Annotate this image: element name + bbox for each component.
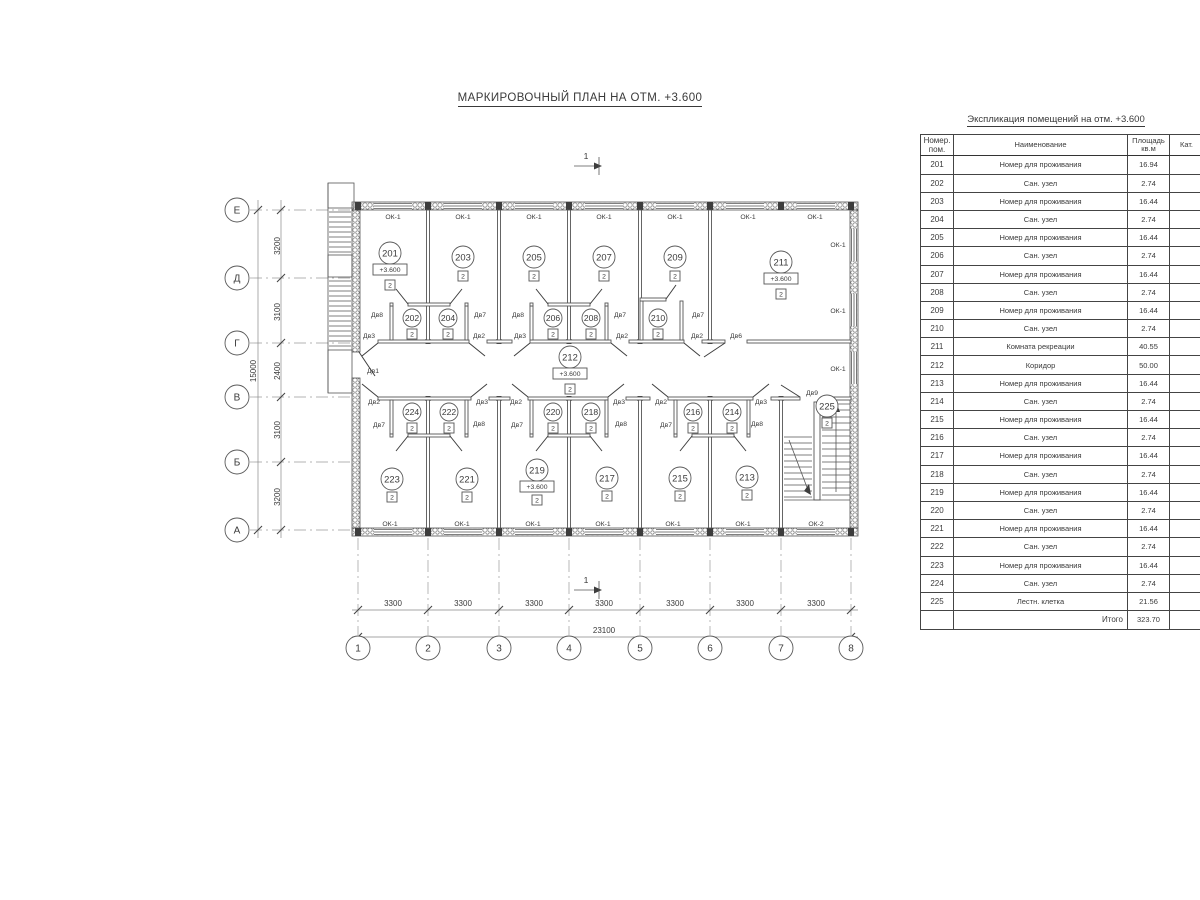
axis-number: 8 — [848, 644, 854, 655]
window-label: ОК-1 — [455, 214, 471, 221]
window-label: ОК-2 — [808, 521, 824, 528]
room-tag: 222 — [442, 407, 457, 417]
room-tag: 203 — [455, 252, 471, 263]
window-label: ОК-1 — [807, 214, 823, 221]
window-label: ОК-1 — [595, 521, 611, 528]
table-row: 208 Сан. узел 2.74 — [921, 283, 1200, 301]
category-mark: 2 — [589, 332, 593, 339]
total-row: Итого 323.70 — [921, 611, 1200, 630]
external-stair — [328, 183, 354, 393]
room-tag: 216 — [686, 407, 701, 417]
room-tag: 223 — [384, 474, 400, 485]
table-row: 201 Номер для проживания 16.94 — [921, 156, 1200, 174]
room-tag: 220 — [546, 407, 561, 417]
category-mark: 2 — [390, 495, 394, 502]
room-tag: 225 — [819, 401, 835, 412]
room-tag: 210 — [651, 313, 666, 323]
room-tag: 211 — [774, 257, 789, 268]
col-header-category: Кат. — [1170, 135, 1200, 156]
dim-v-4: 3100 — [273, 421, 282, 439]
category-mark: 2 — [656, 332, 660, 339]
category-mark: 2 — [673, 274, 677, 281]
dim-h-7: 3300 — [807, 599, 825, 608]
table-row: 225 Лестн. клетка 21.56 — [921, 592, 1200, 610]
door-label: Дв3 — [363, 333, 375, 340]
elevation-mark: +3.600 — [771, 276, 792, 283]
dim-h-1: 3300 — [384, 599, 402, 608]
door-label: Дв2 — [368, 399, 380, 406]
table-row: 222 Сан. узел 2.74 — [921, 538, 1200, 556]
room-tag: 208 — [584, 313, 599, 323]
axis-number: 3 — [496, 644, 502, 655]
category-mark: 2 — [388, 283, 392, 290]
elevation-mark: +3.600 — [560, 371, 581, 378]
category-mark: 2 — [589, 426, 593, 433]
door-label: Дв2 — [510, 399, 522, 406]
section-mark-bottom: 1 — [584, 575, 589, 585]
room-tag: 224 — [405, 407, 420, 417]
category-mark: 2 — [602, 274, 606, 281]
room-schedule: Экспликация помещений на отм. +3.600 Ном… — [920, 114, 1192, 630]
section-mark-top: 1 — [584, 151, 589, 161]
table-row: 224 Сан. узел 2.74 — [921, 574, 1200, 592]
window-label: ОК-1 — [830, 366, 846, 373]
window-label: ОК-1 — [735, 521, 751, 528]
room-tag: 207 — [596, 252, 612, 263]
window-label: ОК-1 — [667, 214, 683, 221]
door-label: Дв7 — [614, 312, 626, 319]
axis-number: 2 — [425, 644, 431, 655]
corridor-walls — [378, 340, 851, 400]
axis-letter: Б — [234, 458, 241, 469]
category-mark: 2 — [535, 498, 539, 505]
door-label: Дв8 — [512, 312, 524, 319]
category-mark: 2 — [447, 426, 451, 433]
table-row: 219 Номер для проживания 16.44 — [921, 483, 1200, 501]
room-tag: 209 — [667, 252, 683, 263]
axis-letter: Г — [234, 339, 240, 350]
category-mark: 2 — [568, 387, 572, 394]
room-tag: 221 — [459, 474, 475, 485]
dim-v-1: 3200 — [273, 237, 282, 255]
dim-v-2: 3100 — [273, 303, 282, 321]
dim-v-3: 2400 — [273, 362, 282, 380]
room-tag: 213 — [739, 472, 755, 483]
axis-letter: Д — [234, 274, 241, 285]
category-mark: 2 — [551, 332, 555, 339]
room-tag: 218 — [584, 407, 599, 417]
window-label: ОК-1 — [830, 242, 846, 249]
door-label: Дв8 — [371, 312, 383, 319]
category-mark: 2 — [779, 292, 783, 299]
dim-h-3: 3300 — [525, 599, 543, 608]
table-row: 207 Номер для проживания 16.44 — [921, 265, 1200, 283]
door-label: Дв7 — [660, 422, 672, 429]
dim-v-5: 3200 — [273, 488, 282, 506]
table-row: 223 Номер для проживания 16.44 — [921, 556, 1200, 574]
schedule-table: Номер. пом. Наименование Площадь кв.м Ка… — [920, 134, 1200, 630]
category-mark: 2 — [446, 332, 450, 339]
door-label: Дв8 — [615, 421, 627, 428]
category-mark: 2 — [461, 274, 465, 281]
table-row: 216 Сан. узел 2.74 — [921, 429, 1200, 447]
axis-number: 6 — [707, 644, 713, 655]
door-label: Дв2 — [655, 399, 667, 406]
axis-bubbles: Е Д Г В Б А 1 2 3 4 5 6 7 8 — [225, 198, 863, 660]
table-row: 210 Сан. узел 2.74 — [921, 320, 1200, 338]
room-tag: 217 — [599, 473, 615, 484]
table-row: 217 Номер для проживания 16.44 — [921, 447, 1200, 465]
window-label: ОК-1 — [525, 521, 541, 528]
category-mark: 2 — [532, 274, 536, 281]
category-mark: 2 — [410, 332, 414, 339]
axis-letter: Е — [234, 206, 241, 217]
category-mark: 2 — [465, 495, 469, 502]
category-mark: 2 — [678, 494, 682, 501]
total-label: Итого — [954, 611, 1128, 630]
door-label: Дв6 — [730, 333, 742, 340]
elevation-mark: +3.600 — [380, 267, 401, 274]
schedule-title: Экспликация помещений на отм. +3.600 — [920, 114, 1192, 125]
room-tag: 215 — [672, 473, 688, 484]
door-label: Дв7 — [373, 422, 385, 429]
dim-h-4: 3300 — [595, 599, 613, 608]
room-tag: 212 — [562, 352, 578, 363]
table-row: 221 Номер для проживания 16.44 — [921, 520, 1200, 538]
category-mark: 2 — [730, 426, 734, 433]
door-label: Дв2 — [691, 333, 703, 340]
table-row: 204 Сан. узел 2.74 — [921, 210, 1200, 228]
table-row: 218 Сан. узел 2.74 — [921, 465, 1200, 483]
door-label: Дв8 — [473, 421, 485, 428]
total-area: 323.70 — [1128, 611, 1170, 630]
table-row: 209 Номер для проживания 16.44 — [921, 301, 1200, 319]
col-header-name: Наименование — [954, 135, 1128, 156]
col-header-number: Номер. пом. — [921, 135, 954, 156]
table-row: 212 Коридор 50.00 — [921, 356, 1200, 374]
dim-h-2: 3300 — [454, 599, 472, 608]
window-label: ОК-1 — [382, 521, 398, 528]
window-label: ОК-1 — [830, 308, 846, 315]
door-label: Дв3 — [514, 333, 526, 340]
stairwell — [784, 402, 850, 500]
window-label: ОК-1 — [454, 521, 470, 528]
door-label: Дв9 — [806, 390, 818, 397]
schedule-body: 201 Номер для проживания 16.94 202 Сан. … — [921, 156, 1200, 611]
door-label: Дв3 — [755, 399, 767, 406]
axis-number: 5 — [637, 644, 643, 655]
door-label: Дв2 — [616, 333, 628, 340]
room-tag: 202 — [405, 313, 420, 323]
window-label: ОК-1 — [740, 214, 756, 221]
axis-number: 7 — [778, 644, 784, 655]
dim-h-5: 3300 — [666, 599, 684, 608]
table-row: 206 Сан. узел 2.74 — [921, 247, 1200, 265]
window-label: ОК-1 — [526, 214, 542, 221]
category-mark: 2 — [605, 494, 609, 501]
dim-h-total: 23100 — [593, 626, 616, 635]
room-tag: 206 — [546, 313, 561, 323]
door-label: Дв3 — [613, 399, 625, 406]
door-label: Дв3 — [476, 399, 488, 406]
table-row: 215 Номер для проживания 16.44 — [921, 411, 1200, 429]
door-label: Дв2 — [473, 333, 485, 340]
room-tag: 219 — [529, 465, 545, 476]
dim-v-total: 15000 — [249, 359, 258, 382]
table-row: 205 Номер для проживания 16.44 — [921, 229, 1200, 247]
table-row: 202 Сан. узел 2.74 — [921, 174, 1200, 192]
category-mark: 2 — [410, 426, 414, 433]
door-label: Дв8 — [751, 421, 763, 428]
axis-number: 4 — [566, 644, 572, 655]
category-mark: 2 — [551, 426, 555, 433]
table-row: 213 Номер для проживания 16.44 — [921, 374, 1200, 392]
category-mark: 2 — [691, 426, 695, 433]
dim-h-6: 3300 — [736, 599, 754, 608]
door-label: Дв7 — [474, 312, 486, 319]
room-tag: 214 — [725, 407, 740, 417]
room-tag: 201 — [382, 248, 398, 259]
window-label: ОК-1 — [665, 521, 681, 528]
axis-letter: А — [234, 526, 241, 537]
elevation-mark: +3.600 — [527, 484, 548, 491]
door-label: Дв7 — [692, 312, 704, 319]
col-header-area: Площадь кв.м — [1128, 135, 1170, 156]
room-tag: 205 — [526, 252, 542, 263]
table-row: 203 Номер для проживания 16.44 — [921, 192, 1200, 210]
room-tag: 204 — [441, 313, 456, 323]
table-row: 214 Сан. узел 2.74 — [921, 392, 1200, 410]
door-label: Дв7 — [511, 422, 523, 429]
drawing-sheet: МАРКИРОВОЧНЫЙ ПЛАН НА ОТМ. +3.600 — [0, 0, 1200, 900]
window-label: ОК-1 — [385, 214, 401, 221]
axis-number: 1 — [355, 644, 361, 655]
table-row: 211 Комната рекреации 40.55 — [921, 338, 1200, 356]
axis-letter: В — [234, 393, 241, 404]
category-mark: 2 — [825, 421, 829, 428]
elevation-marks: +3.600 +3.600 +3.600 +3.600 — [373, 264, 798, 492]
door-label: Дв1 — [367, 368, 379, 375]
window-label: ОК-1 — [596, 214, 612, 221]
category-mark: 2 — [745, 493, 749, 500]
table-row: 220 Сан. узел 2.74 — [921, 501, 1200, 519]
